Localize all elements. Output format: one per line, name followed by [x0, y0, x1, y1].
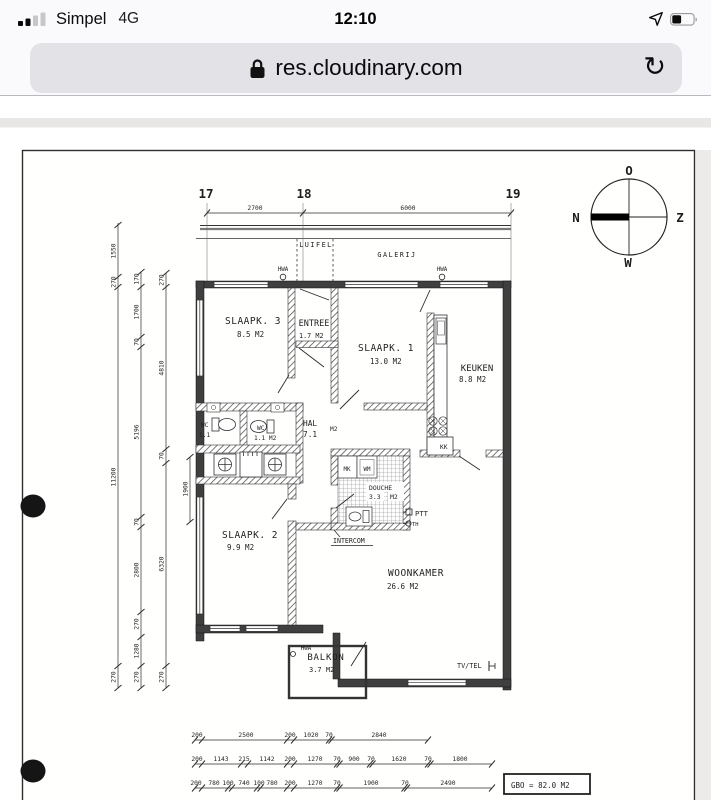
dim-value: 1270 [307, 756, 322, 763]
dim-value: 70 [134, 338, 141, 346]
plan-label: 19 [505, 186, 520, 201]
reload-button[interactable]: ↻ [643, 53, 666, 80]
dim-value: 270 [159, 671, 166, 683]
dim-value: 1900 [363, 780, 378, 787]
dim-value: 70 [325, 732, 333, 739]
dim-value: 270 [111, 671, 118, 683]
plan-label: 13.0 M2 [370, 357, 402, 366]
dim-value: 70 [333, 756, 341, 763]
dim-value: 200 [284, 780, 296, 787]
plan-label: HWA [301, 646, 312, 652]
plan-label: 1.7 M2 [299, 332, 324, 340]
dim-value: 11200 [111, 467, 118, 486]
dim-value: 215 [238, 756, 250, 763]
plan-label: GALERIJ [377, 251, 416, 259]
plan-label: DOUCHE [369, 484, 392, 492]
punch-hole-top [21, 495, 46, 518]
plan-label: HAL [303, 419, 317, 428]
url-bar: res.cloudinary.com ↻ [0, 38, 711, 96]
compass-n: N [572, 210, 580, 225]
plan-label: WC [201, 422, 209, 429]
plan-label: KEUKEN [461, 364, 494, 374]
status-bar: Simpel 4G 12:10 [0, 0, 711, 38]
plan-label: 26.6 M2 [387, 582, 419, 591]
dim-value: 70 [424, 756, 432, 763]
dim-value: 6320 [159, 556, 166, 571]
plan-label: TV/TEL [457, 662, 482, 670]
dim-value: 2500 [238, 732, 253, 739]
plan-label: 7.1 [303, 430, 317, 439]
dim-value: 1900 [183, 481, 190, 496]
dim-value: 70 [401, 780, 409, 787]
plan-label: SLAAPK. 1 [358, 343, 414, 354]
dim-value: 1142 [259, 756, 274, 763]
dim-value: 100 [253, 780, 265, 787]
toilet-box [346, 507, 372, 526]
compass-rose [591, 179, 667, 255]
plan-label: BALKON [307, 653, 344, 663]
plan-label: 1.1 M2 [254, 435, 277, 442]
floorplan-image[interactable]: O N Z W [0, 96, 711, 800]
scan-page [0, 96, 711, 800]
dim-value: 2840 [371, 732, 386, 739]
dim-value: 270 [134, 671, 141, 683]
dim-value: 200 [284, 732, 296, 739]
dim-value: 200 [284, 756, 296, 763]
punch-hole-bottom [21, 760, 46, 783]
compass-z: Z [676, 210, 684, 225]
dim-value: 2700 [247, 205, 262, 212]
dim-value: 2490 [440, 780, 455, 787]
lock-icon [249, 58, 266, 79]
plan-label: 3.3 [369, 493, 381, 501]
compass-north-bar [591, 214, 629, 221]
dim-value: 100 [222, 780, 234, 787]
plan-label: INTERCOM [333, 537, 365, 545]
carrier-label: Simpel [56, 10, 106, 29]
plan-label: SLAAPK. 2 [222, 530, 278, 541]
dim-value: 1620 [391, 756, 406, 763]
dim-value: 70 [134, 518, 141, 526]
plan-label: M2 [390, 493, 398, 501]
cv-closets [214, 452, 286, 477]
plan-label: LUIFEL [299, 241, 333, 249]
dim-value: 270 [134, 618, 141, 630]
plan-label: HWA [437, 267, 448, 273]
dim-value: 780 [266, 780, 278, 787]
clock-label: 12:10 [334, 0, 376, 38]
dim-value: 70 [333, 780, 341, 787]
plan-label: ENTREE [299, 319, 330, 329]
battery-icon [670, 13, 699, 26]
dim-value: 1550 [111, 243, 118, 258]
dim-value: 1800 [452, 756, 467, 763]
plan-label: WOONKAMER [388, 568, 444, 579]
compass-o: O [625, 163, 633, 178]
safari-toolbar: Simpel 4G 12:10 res.cloudinary.com ↻ [0, 0, 711, 96]
plan-label: 8.8 M2 [459, 375, 486, 384]
url-domain: res.cloudinary.com [275, 55, 462, 81]
plan-label: WM [364, 467, 371, 473]
plan-label: SLAAPK. 3 [225, 316, 281, 327]
location-arrow-icon [648, 11, 664, 27]
dim-value: 70 [367, 756, 375, 763]
dim-value: 270 [111, 276, 118, 288]
plan-label: MK [344, 467, 351, 473]
dim-value: 780 [208, 780, 220, 787]
plan-label: HWA [278, 267, 289, 273]
plan-label: 1.1 [199, 432, 210, 439]
dim-value: 740 [238, 780, 250, 787]
dim-value: 170 [134, 273, 141, 285]
dim-value: 1700 [134, 304, 141, 319]
dim-value: 5196 [134, 424, 141, 439]
plan-label: 18 [296, 186, 311, 201]
plan-label: 8.5 M2 [237, 330, 264, 339]
dim-value: 200 [191, 732, 203, 739]
status-right [648, 0, 699, 38]
dim-value: 2800 [134, 562, 141, 577]
floorplan-document: O N Z W [0, 96, 711, 800]
address-field[interactable]: res.cloudinary.com ↻ [30, 43, 682, 93]
plan-label: WC [257, 425, 265, 432]
dim-value: 1020 [303, 732, 318, 739]
plan-label: M2 [330, 426, 338, 433]
dim-value: 70 [159, 452, 166, 460]
dim-value: 270 [159, 274, 166, 286]
status-left: Simpel 4G [18, 0, 139, 38]
plan-label: 3.7 M2 [309, 666, 334, 674]
plan-label: TH [412, 522, 419, 528]
dim-value: 900 [348, 756, 360, 763]
dim-value: 6000 [400, 205, 415, 212]
dim-value: 200 [190, 780, 202, 787]
dim-value: 4810 [159, 360, 166, 375]
dim-value: 1143 [213, 756, 228, 763]
dim-value: 1270 [307, 780, 322, 787]
network-label: 4G [118, 10, 139, 28]
plan-label: PTT [415, 509, 429, 518]
plan-label: KK [440, 444, 448, 451]
compass-w: W [624, 255, 632, 270]
dim-value: 1280 [134, 643, 141, 658]
gbo-label: GBO = 82.0 M2 [511, 781, 570, 790]
plan-label: 17 [198, 186, 213, 201]
dim-value: 200 [191, 756, 203, 763]
signal-bars-icon [18, 12, 48, 26]
plan-label: 9.9 M2 [227, 543, 254, 552]
